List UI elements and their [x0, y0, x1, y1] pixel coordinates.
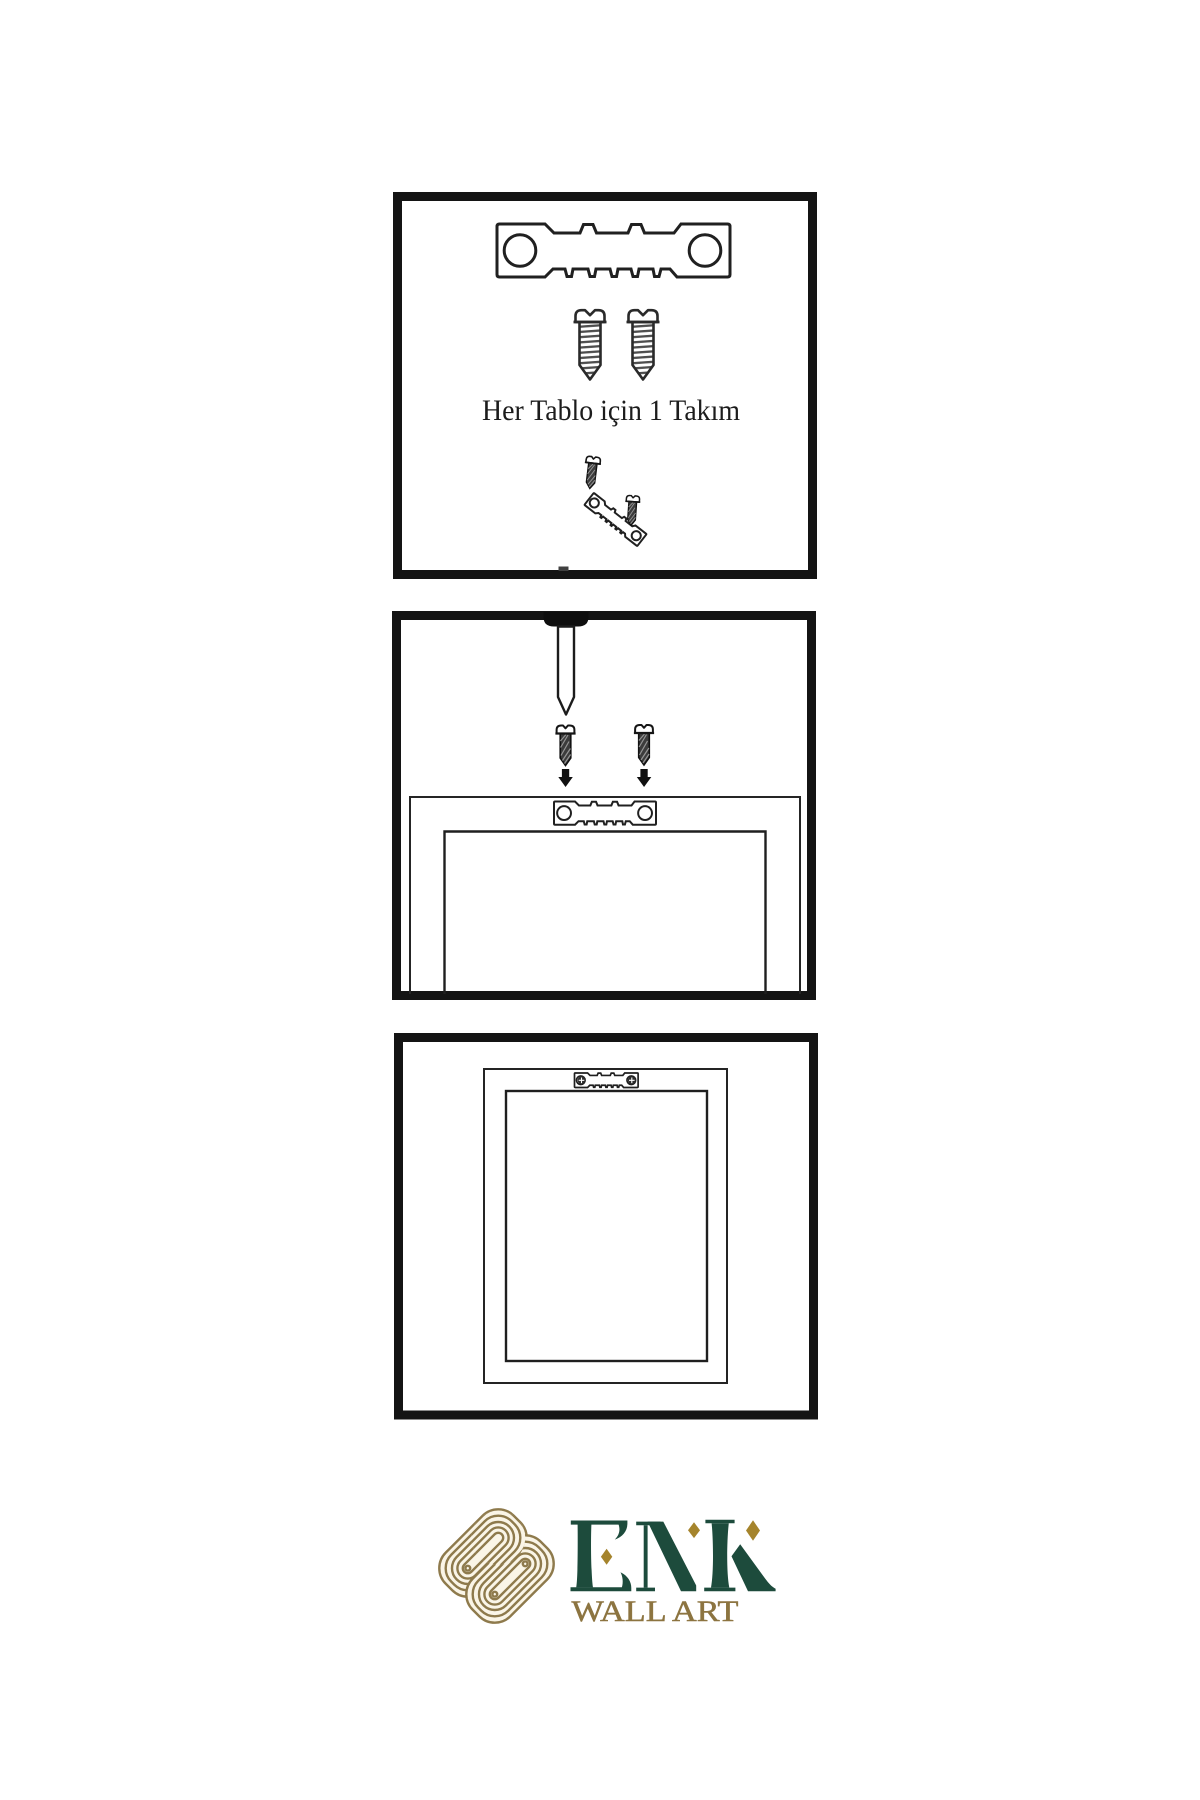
svg-text:WALL ART: WALL ART: [572, 1595, 739, 1628]
svg-text:Her Tablo için 1 Takım: Her Tablo için 1 Takım: [482, 394, 740, 427]
